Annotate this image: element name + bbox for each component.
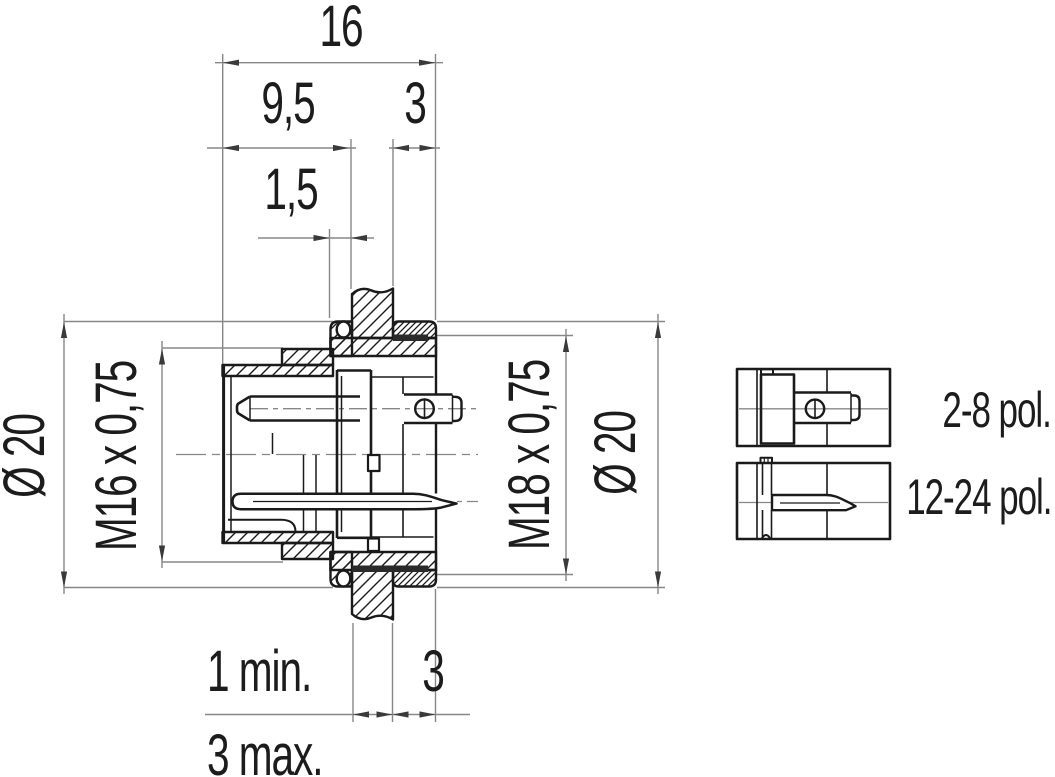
panel-wall-bottom bbox=[352, 570, 393, 620]
o-ring-top bbox=[337, 322, 351, 338]
dim-front-thread: M16 x 0,75 bbox=[88, 361, 146, 551]
technical-drawing: 16 9,5 3 1,5 Ø 20 M16 x 0,75 M18 x 0,75 … bbox=[0, 0, 1055, 777]
variant-label-2-8-pol: 2-8 pol. bbox=[943, 385, 1051, 435]
shell-wall-bottom bbox=[223, 532, 334, 543]
dim-rear-thread: M18 x 0,75 bbox=[501, 360, 559, 550]
key-detail-top bbox=[368, 455, 380, 471]
detail-view-12-24-pol bbox=[737, 458, 890, 539]
dimension-lines bbox=[64, 54, 888, 722]
shell-wall-top bbox=[223, 365, 334, 376]
o-ring-bottom bbox=[337, 571, 351, 587]
nut-bottom bbox=[393, 570, 436, 587]
blade-tail bbox=[233, 494, 457, 509]
key-detail-bottom bbox=[368, 539, 379, 552]
dim-panel-thickness-max: 3 max. bbox=[207, 727, 323, 777]
dim-rear-offset: 3 bbox=[422, 643, 444, 701]
dim-overall-length: 16 bbox=[319, 0, 362, 56]
dim-front-length: 9,5 bbox=[261, 75, 314, 133]
m16-collar-bottom bbox=[282, 543, 333, 559]
variant-label-12-24-pol: 12-24 pol. bbox=[906, 472, 1051, 522]
dim-flange-lip: 1,5 bbox=[264, 161, 317, 219]
dim-flange-diameter-left: Ø 20 bbox=[0, 414, 54, 498]
connector-section bbox=[223, 289, 462, 620]
detail-view-2-8-pol bbox=[737, 369, 890, 446]
dim-panel-thickness-min: 1 min. bbox=[207, 643, 311, 701]
dim-flange-diameter-right: Ø 20 bbox=[587, 411, 645, 495]
solder-cup-tail bbox=[404, 395, 462, 424]
panel-wall-top bbox=[352, 289, 393, 339]
m16-collar-top bbox=[282, 349, 333, 365]
dim-rear-length: 3 bbox=[404, 75, 426, 133]
